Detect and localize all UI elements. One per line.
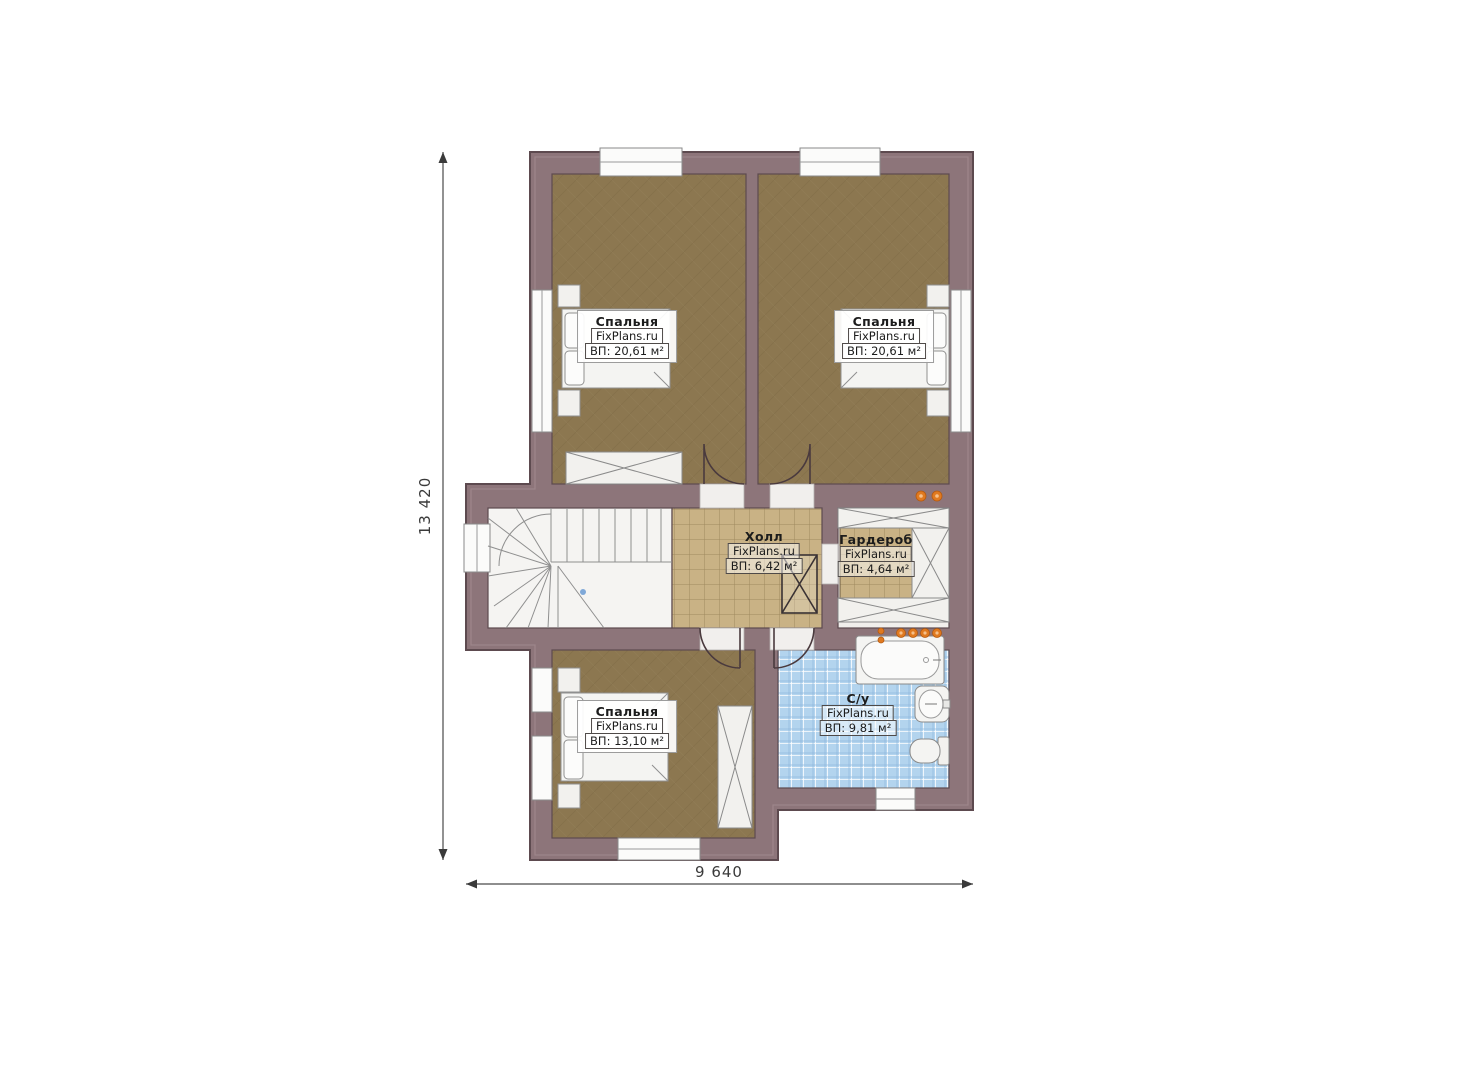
- closet-bedroom-bottom: [718, 706, 752, 828]
- brand-label: FixPlans.ru: [822, 705, 894, 721]
- door-threshold-bathroom: [770, 628, 814, 650]
- room-label-bedroom-bottom: Спальня FixPlans.ru ВП: 13,10 м²: [577, 700, 677, 753]
- room-name: С/у: [846, 691, 869, 706]
- dim-arrow: [466, 880, 477, 889]
- dim-arrow: [439, 849, 448, 860]
- closet-bedroom-top-left: [566, 452, 682, 484]
- stair-bay-floor: [488, 508, 672, 628]
- nightstand: [927, 390, 949, 416]
- room-area: ВП: 13,10 м²: [585, 733, 669, 749]
- room-name: Гардероб: [839, 532, 912, 547]
- brand-label: FixPlans.ru: [591, 328, 663, 344]
- dimension-width-label: 9 640: [695, 863, 743, 881]
- room-label-wardrobe: Гардероб FixPlans.ru ВП: 4,64 м²: [838, 532, 915, 577]
- toilet-icon: [910, 737, 949, 765]
- room-label-hall: Холл FixPlans.ru ВП: 6,42 м²: [726, 529, 803, 574]
- nightstand: [927, 285, 949, 307]
- door-threshold-wardrobe: [822, 544, 838, 584]
- room-name: Спальня: [596, 314, 659, 329]
- dimension-height-label: 13 420: [416, 477, 434, 536]
- room-area: ВП: 20,61 м²: [842, 343, 926, 359]
- floor-plan-page: 13 420 9 640 Спальня FixPlans.ru ВП: 20,…: [0, 0, 1474, 1080]
- room-name: Холл: [745, 529, 783, 544]
- brand-label: FixPlans.ru: [840, 546, 912, 562]
- nightstand: [558, 784, 580, 808]
- door-threshold-bedroom2: [770, 484, 814, 508]
- window-bedroom-bottom-left-2: [532, 736, 552, 800]
- closet-wardrobe-top: [838, 508, 949, 528]
- room-name: Спальня: [596, 704, 659, 719]
- brand-label: FixPlans.ru: [848, 328, 920, 344]
- room-label-bathroom: С/у FixPlans.ru ВП: 9,81 м²: [820, 691, 897, 736]
- stair-marker-dot: [580, 589, 586, 595]
- door-threshold-bedroom3: [700, 628, 744, 650]
- room-label-bedroom-top-right: Спальня FixPlans.ru ВП: 20,61 м²: [834, 310, 934, 363]
- nightstand: [558, 390, 580, 416]
- sink-icon: [915, 686, 950, 722]
- toilet-bowl: [910, 739, 940, 763]
- window-bedroom-bottom-left-1: [532, 668, 552, 712]
- room-area: ВП: 4,64 м²: [838, 561, 915, 577]
- nightstand: [558, 285, 580, 307]
- room-label-bedroom-top-left: Спальня FixPlans.ru ВП: 20,61 м²: [577, 310, 677, 363]
- door-threshold-bedroom1: [700, 484, 744, 508]
- closet-wardrobe-bottom: [838, 598, 949, 622]
- dim-arrow: [962, 880, 973, 889]
- room-area: ВП: 6,42 м²: [726, 558, 803, 574]
- room-area: ВП: 9,81 м²: [820, 720, 897, 736]
- room-name: Спальня: [853, 314, 916, 329]
- brand-label: FixPlans.ru: [591, 718, 663, 734]
- sink-faucet: [943, 700, 950, 708]
- bathtub-icon: [856, 636, 944, 684]
- dim-arrow: [439, 152, 448, 163]
- nightstand: [558, 668, 580, 692]
- closet-wardrobe-right: [912, 528, 949, 598]
- brand-label: FixPlans.ru: [728, 543, 800, 559]
- room-area: ВП: 20,61 м²: [585, 343, 669, 359]
